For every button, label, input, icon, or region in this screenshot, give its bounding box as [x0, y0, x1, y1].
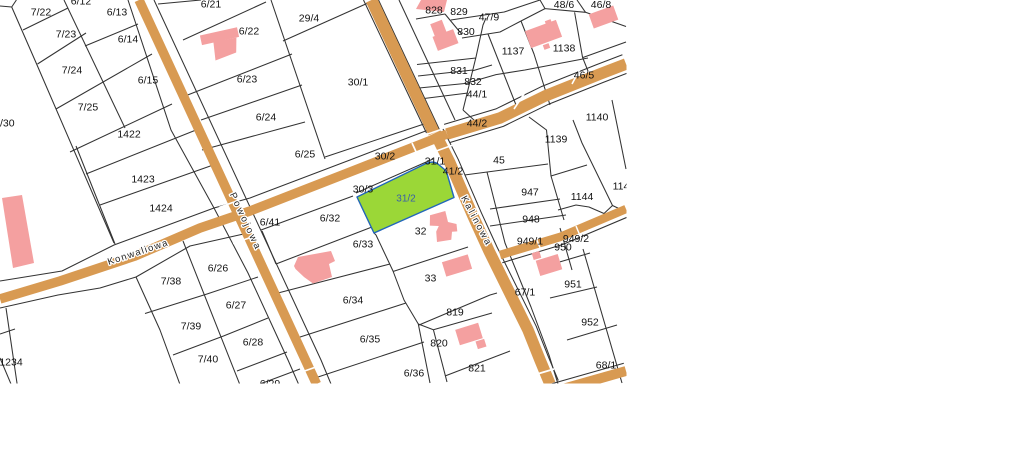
- svg-text:947: 947: [521, 187, 539, 199]
- svg-text:6/41: 6/41: [260, 217, 281, 229]
- svg-text:1144: 1144: [571, 191, 594, 203]
- svg-text:6/26: 6/26: [208, 263, 229, 275]
- svg-text:6/28: 6/28: [243, 337, 264, 349]
- svg-text:67/1: 67/1: [515, 287, 536, 299]
- svg-text:47/9: 47/9: [479, 12, 500, 24]
- svg-text:1234: 1234: [0, 357, 23, 369]
- svg-text:6/14: 6/14: [118, 34, 139, 46]
- svg-text:1422: 1422: [117, 129, 141, 141]
- svg-text:819: 819: [446, 307, 464, 319]
- svg-text:32: 32: [415, 226, 427, 238]
- svg-text:48/6: 48/6: [554, 0, 575, 11]
- svg-text:30/3: 30/3: [353, 184, 374, 196]
- svg-text:7/38: 7/38: [161, 276, 182, 288]
- svg-text:6/24: 6/24: [256, 112, 277, 124]
- svg-text:1138: 1138: [553, 43, 576, 55]
- svg-text:820: 820: [430, 338, 448, 350]
- svg-text:6/25: 6/25: [295, 149, 316, 161]
- svg-text:6/13: 6/13: [107, 7, 128, 19]
- svg-text:948: 948: [522, 214, 540, 226]
- svg-text:45: 45: [493, 155, 505, 167]
- svg-text:7/40: 7/40: [198, 354, 219, 366]
- svg-text:68/1: 68/1: [596, 360, 617, 372]
- svg-text:6/36: 6/36: [404, 368, 425, 380]
- svg-text:46/8: 46/8: [591, 0, 612, 11]
- svg-text:6/12: 6/12: [71, 0, 92, 8]
- svg-text:6/23: 6/23: [237, 74, 258, 86]
- svg-text:6/35: 6/35: [360, 334, 381, 346]
- svg-text:/30: /30: [0, 118, 15, 130]
- svg-text:7/22: 7/22: [31, 7, 52, 19]
- svg-text:6/33: 6/33: [353, 239, 374, 251]
- svg-text:29/4: 29/4: [299, 13, 320, 25]
- svg-text:44/1: 44/1: [467, 89, 488, 101]
- svg-text:1423: 1423: [131, 174, 155, 186]
- svg-text:951: 951: [564, 279, 582, 291]
- svg-text:1140: 1140: [586, 112, 609, 124]
- svg-text:6/27: 6/27: [226, 300, 247, 312]
- svg-text:6/21: 6/21: [201, 0, 222, 11]
- svg-text:821: 821: [468, 363, 486, 375]
- svg-text:949/1: 949/1: [517, 236, 543, 248]
- svg-text:31/2: 31/2: [396, 194, 416, 205]
- svg-text:828: 828: [425, 5, 443, 17]
- svg-text:830: 830: [457, 26, 475, 38]
- svg-text:41/2: 41/2: [443, 166, 464, 178]
- svg-text:832: 832: [464, 76, 482, 88]
- svg-text:7/24: 7/24: [62, 65, 83, 77]
- svg-text:1139: 1139: [545, 134, 568, 146]
- svg-text:7/39: 7/39: [181, 321, 202, 333]
- svg-text:6/22: 6/22: [239, 26, 260, 38]
- svg-text:7/25: 7/25: [78, 102, 99, 114]
- svg-text:1424: 1424: [149, 203, 173, 215]
- svg-text:6/15: 6/15: [138, 75, 159, 87]
- svg-text:44/2: 44/2: [467, 118, 488, 130]
- svg-text:6/34: 6/34: [343, 295, 364, 307]
- svg-text:30/2: 30/2: [375, 151, 396, 163]
- svg-text:46/5: 46/5: [574, 70, 595, 82]
- svg-text:829: 829: [450, 6, 468, 18]
- svg-text:6/32: 6/32: [320, 213, 341, 225]
- svg-text:7/23: 7/23: [56, 29, 77, 41]
- svg-text:1137: 1137: [502, 46, 525, 58]
- svg-text:33: 33: [425, 273, 437, 285]
- svg-text:952: 952: [581, 317, 599, 329]
- svg-text:950: 950: [554, 242, 572, 254]
- svg-text:30/1: 30/1: [348, 77, 369, 89]
